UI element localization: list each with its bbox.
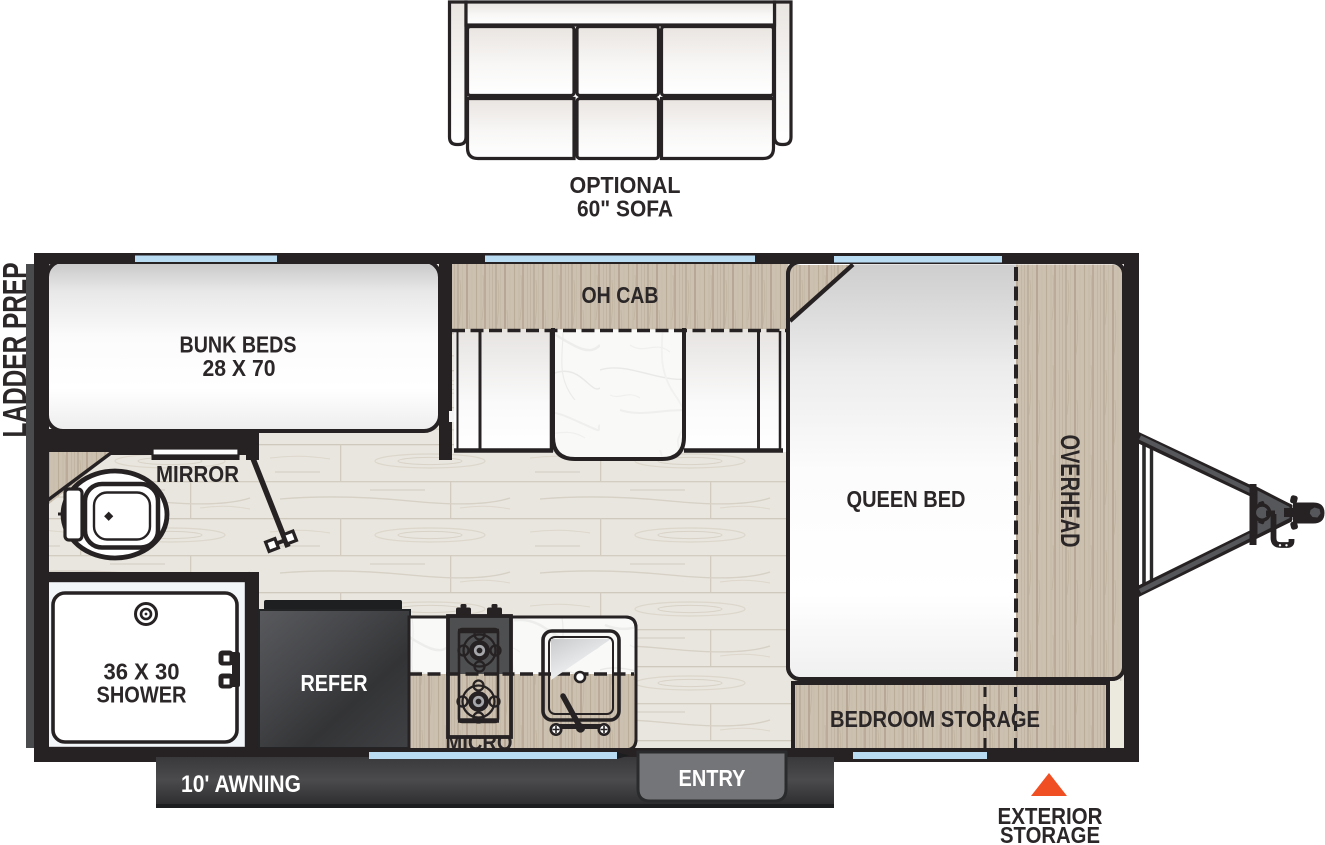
svg-text:10' AWNING: 10' AWNING <box>181 771 301 798</box>
svg-text:BUNK BEDS: BUNK BEDS <box>180 332 297 358</box>
svg-text:REFER: REFER <box>301 670 368 696</box>
svg-text:OH CAB: OH CAB <box>582 282 659 308</box>
svg-text:QUEEN BED: QUEEN BED <box>847 486 966 512</box>
svg-text:OVERHEAD: OVERHEAD <box>1055 435 1085 548</box>
svg-text:ENTRY: ENTRY <box>679 765 746 791</box>
svg-text:STORAGE: STORAGE <box>1000 822 1100 845</box>
svg-text:BEDROOM STORAGE: BEDROOM STORAGE <box>830 706 1040 732</box>
svg-text:SHOWER: SHOWER <box>97 682 187 708</box>
svg-text:60" SOFA: 60" SOFA <box>577 196 673 222</box>
svg-text:28 X 70: 28 X 70 <box>203 355 276 381</box>
svg-text:MIRROR: MIRROR <box>156 461 239 487</box>
svg-text:OPTIONAL: OPTIONAL <box>570 172 681 198</box>
